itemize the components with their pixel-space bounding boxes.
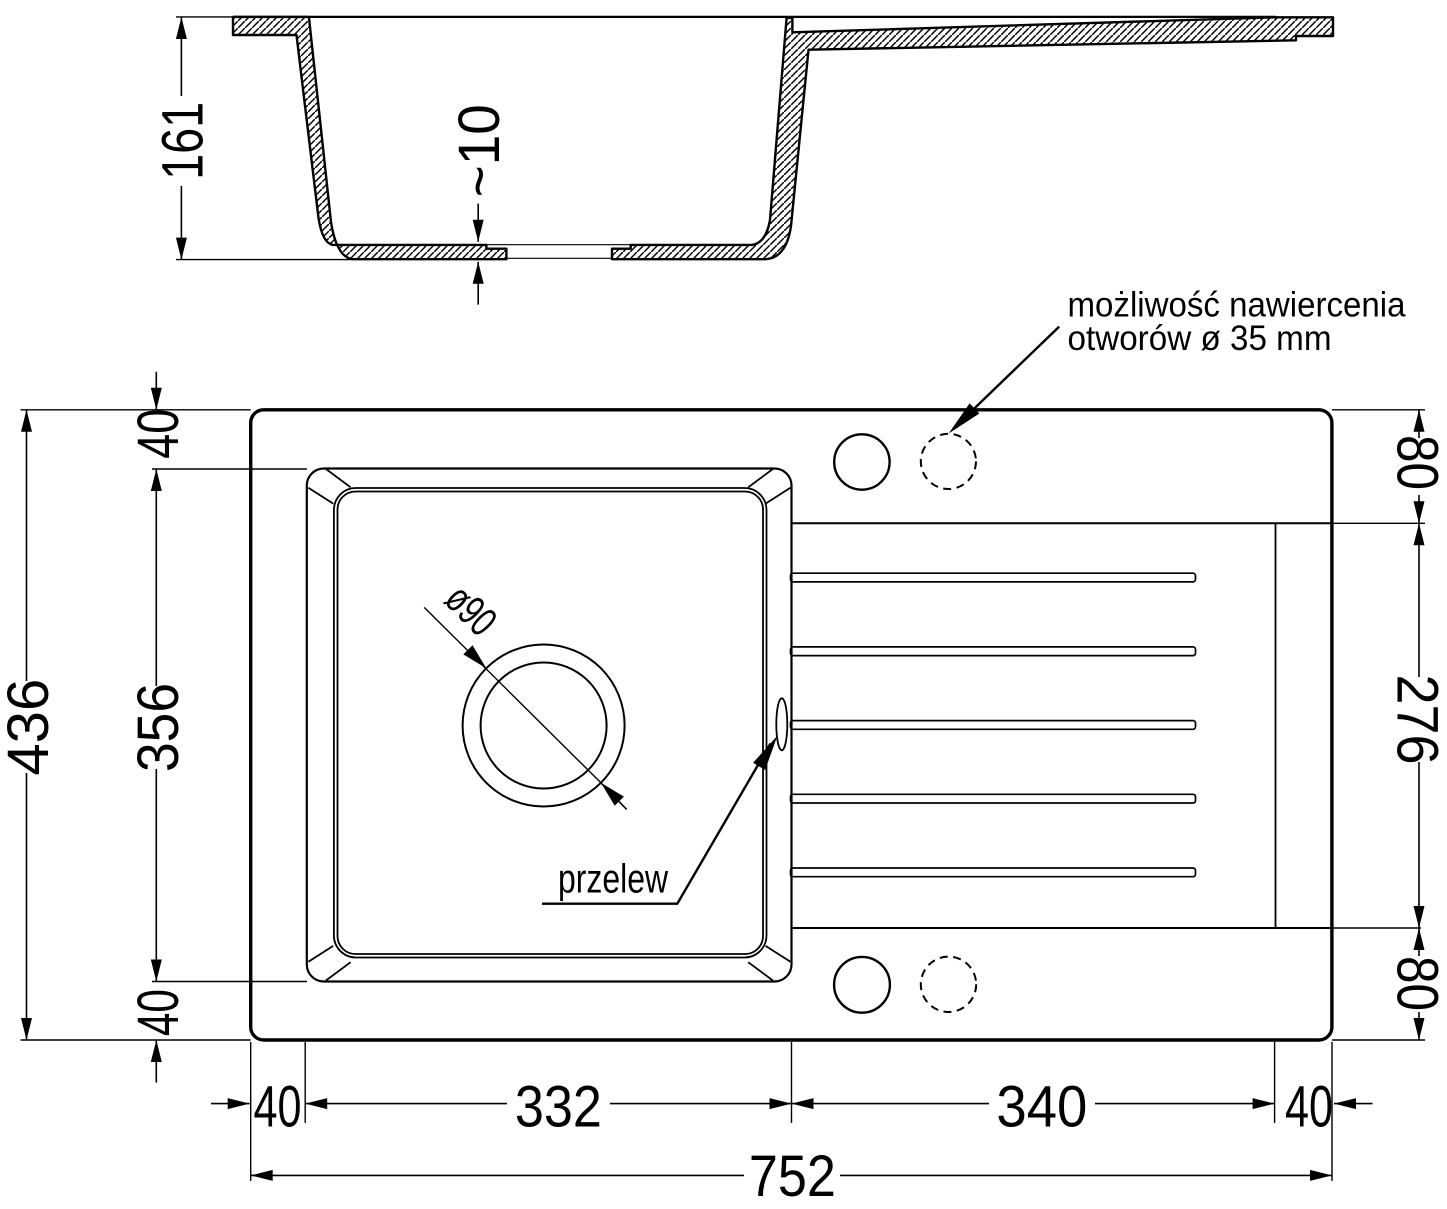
svg-text:436: 436 (0, 679, 61, 776)
svg-text:otworów ø 35 mm: otworów ø 35 mm (1068, 319, 1332, 358)
svg-text:40: 40 (126, 409, 191, 459)
svg-text:161: 161 (150, 102, 215, 180)
svg-text:40: 40 (254, 1074, 302, 1139)
svg-text:80: 80 (1385, 956, 1447, 1011)
svg-text:340: 340 (996, 1074, 1087, 1139)
svg-text:~10: ~10 (447, 104, 512, 197)
svg-text:752: 752 (749, 1144, 836, 1209)
svg-text:80: 80 (1385, 435, 1447, 490)
svg-text:40: 40 (126, 989, 191, 1036)
svg-text:276: 276 (1385, 675, 1447, 765)
svg-text:356: 356 (126, 683, 191, 772)
svg-text:przelew: przelew (558, 855, 668, 901)
svg-text:332: 332 (515, 1074, 602, 1139)
svg-text:40: 40 (1285, 1074, 1333, 1139)
